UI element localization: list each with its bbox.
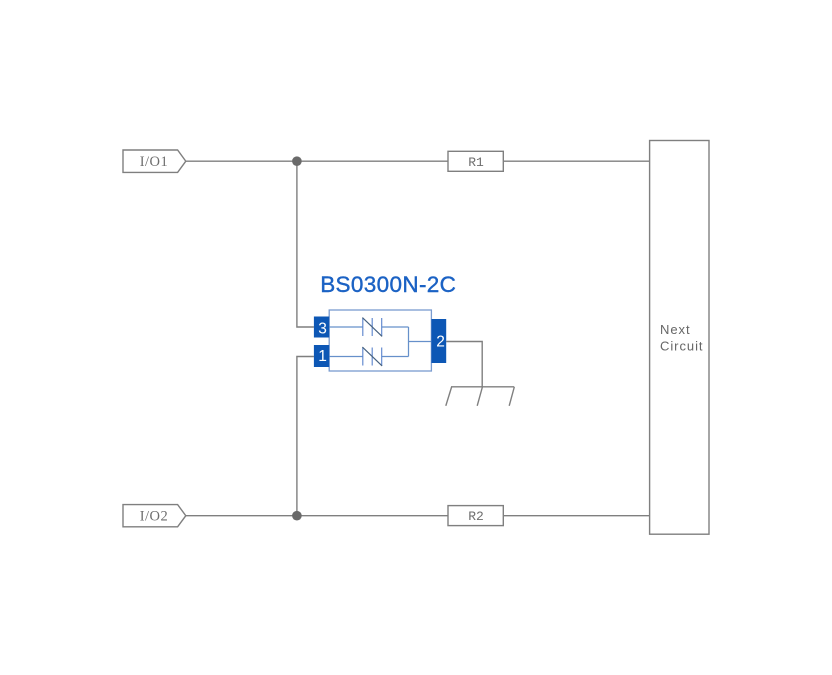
svg-text:I/O1: I/O1 <box>140 154 169 170</box>
svg-text:1: 1 <box>318 348 327 365</box>
svg-text:Next: Next <box>660 322 691 337</box>
svg-text:3: 3 <box>318 320 327 337</box>
svg-text:R1: R1 <box>468 155 484 170</box>
svg-text:Circuit: Circuit <box>660 338 704 353</box>
svg-text:I/O2: I/O2 <box>140 509 169 525</box>
svg-text:R2: R2 <box>468 509 484 524</box>
svg-text:BS0300N-2C: BS0300N-2C <box>320 272 456 297</box>
svg-text:2: 2 <box>436 334 445 351</box>
